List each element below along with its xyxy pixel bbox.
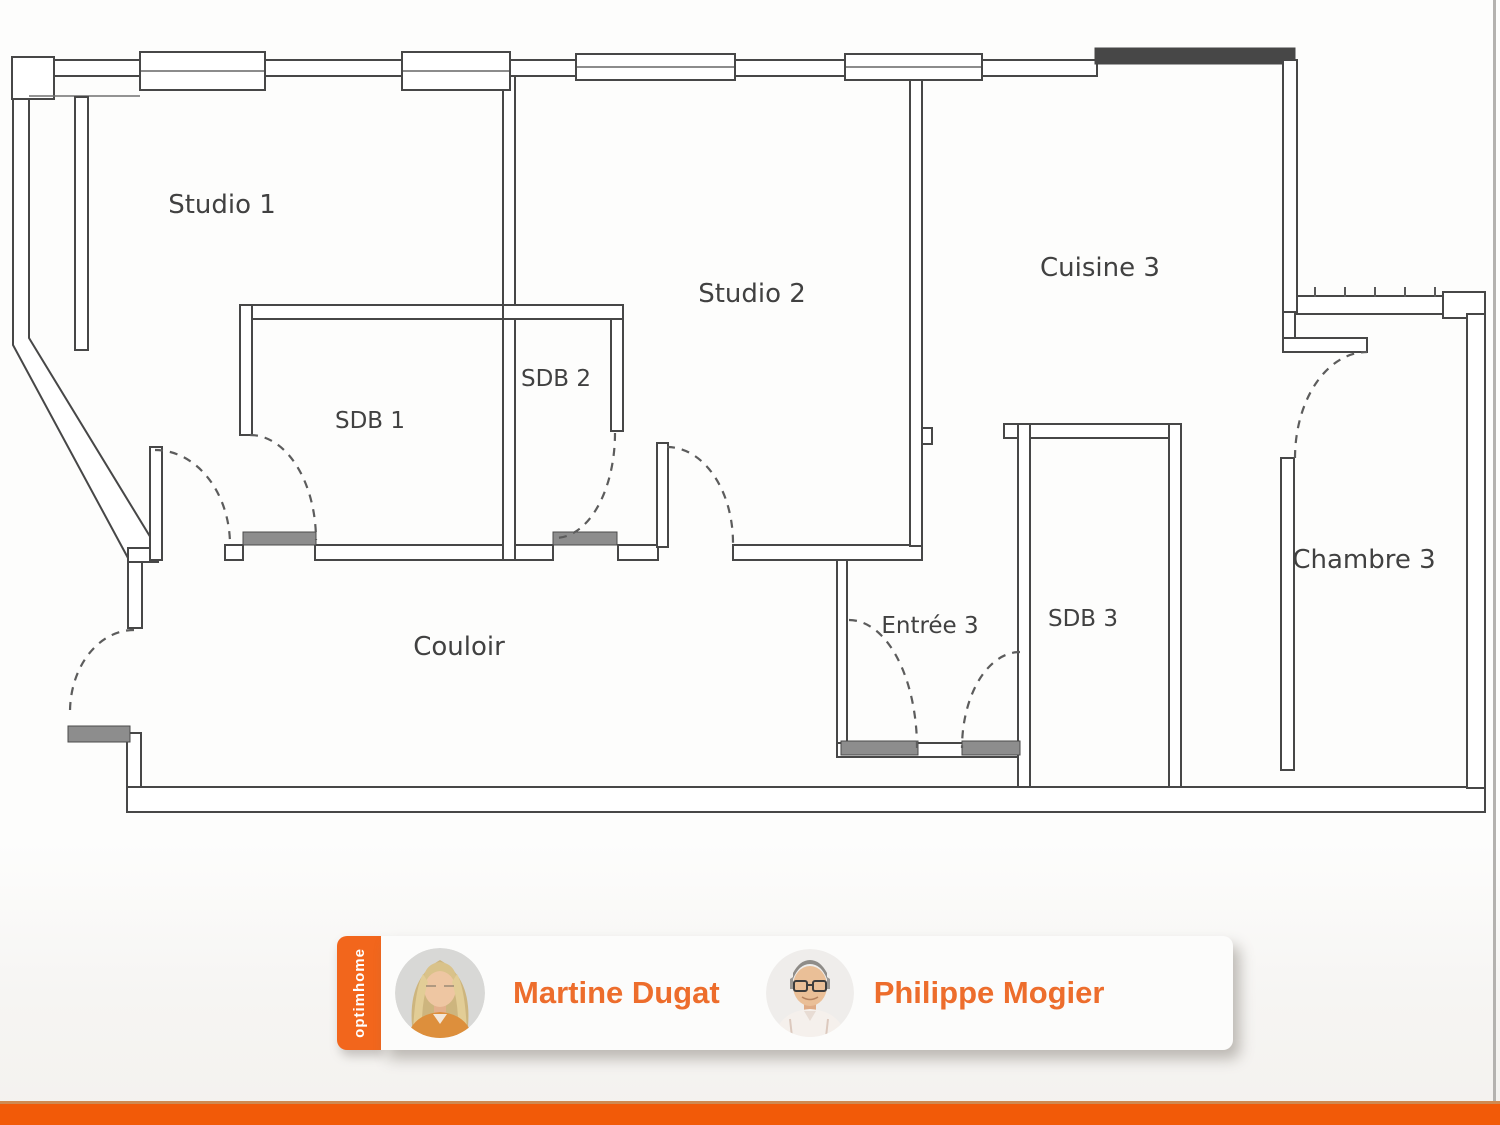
agent-avatar-martine: [395, 948, 485, 1038]
room-label-studio1: Studio 1: [168, 190, 276, 220]
agent-name-martine: Martine Dugat: [513, 975, 720, 1011]
page-edge-line: [1493, 0, 1496, 1103]
brand-tab: optimhome: [337, 936, 381, 1050]
brand-vertical-text: optimhome: [351, 948, 368, 1038]
room-label-sdb1: SDB 1: [335, 408, 405, 434]
room-label-entree3: Entrée 3: [881, 613, 978, 639]
agent-banner: optimhome Martine Dugat: [337, 936, 1233, 1050]
agent-card: Martine Dugat Philippe Mogier: [381, 936, 1233, 1050]
room-label-cuisine3: Cuisine 3: [1040, 253, 1160, 283]
walls: [12, 48, 1485, 812]
woman-portrait-icon: [395, 948, 485, 1038]
room-label-studio2: Studio 2: [698, 279, 806, 309]
room-labels: Studio 1 Studio 2 Cuisine 3 SDB 1 SDB 2 …: [168, 190, 1435, 662]
door-sills: [68, 532, 1020, 755]
agent-avatar-philippe: [766, 949, 854, 1037]
windows: [140, 52, 1435, 297]
room-label-chambre3: Chambre 3: [1292, 545, 1435, 575]
room-label-sdb2: SDB 2: [521, 366, 591, 392]
agent-name-philippe: Philippe Mogier: [874, 975, 1105, 1011]
room-label-sdb3: SDB 3: [1048, 606, 1118, 632]
room-label-couloir: Couloir: [413, 632, 505, 662]
footer-bar: [0, 1104, 1500, 1125]
man-portrait-icon: [766, 949, 854, 1037]
